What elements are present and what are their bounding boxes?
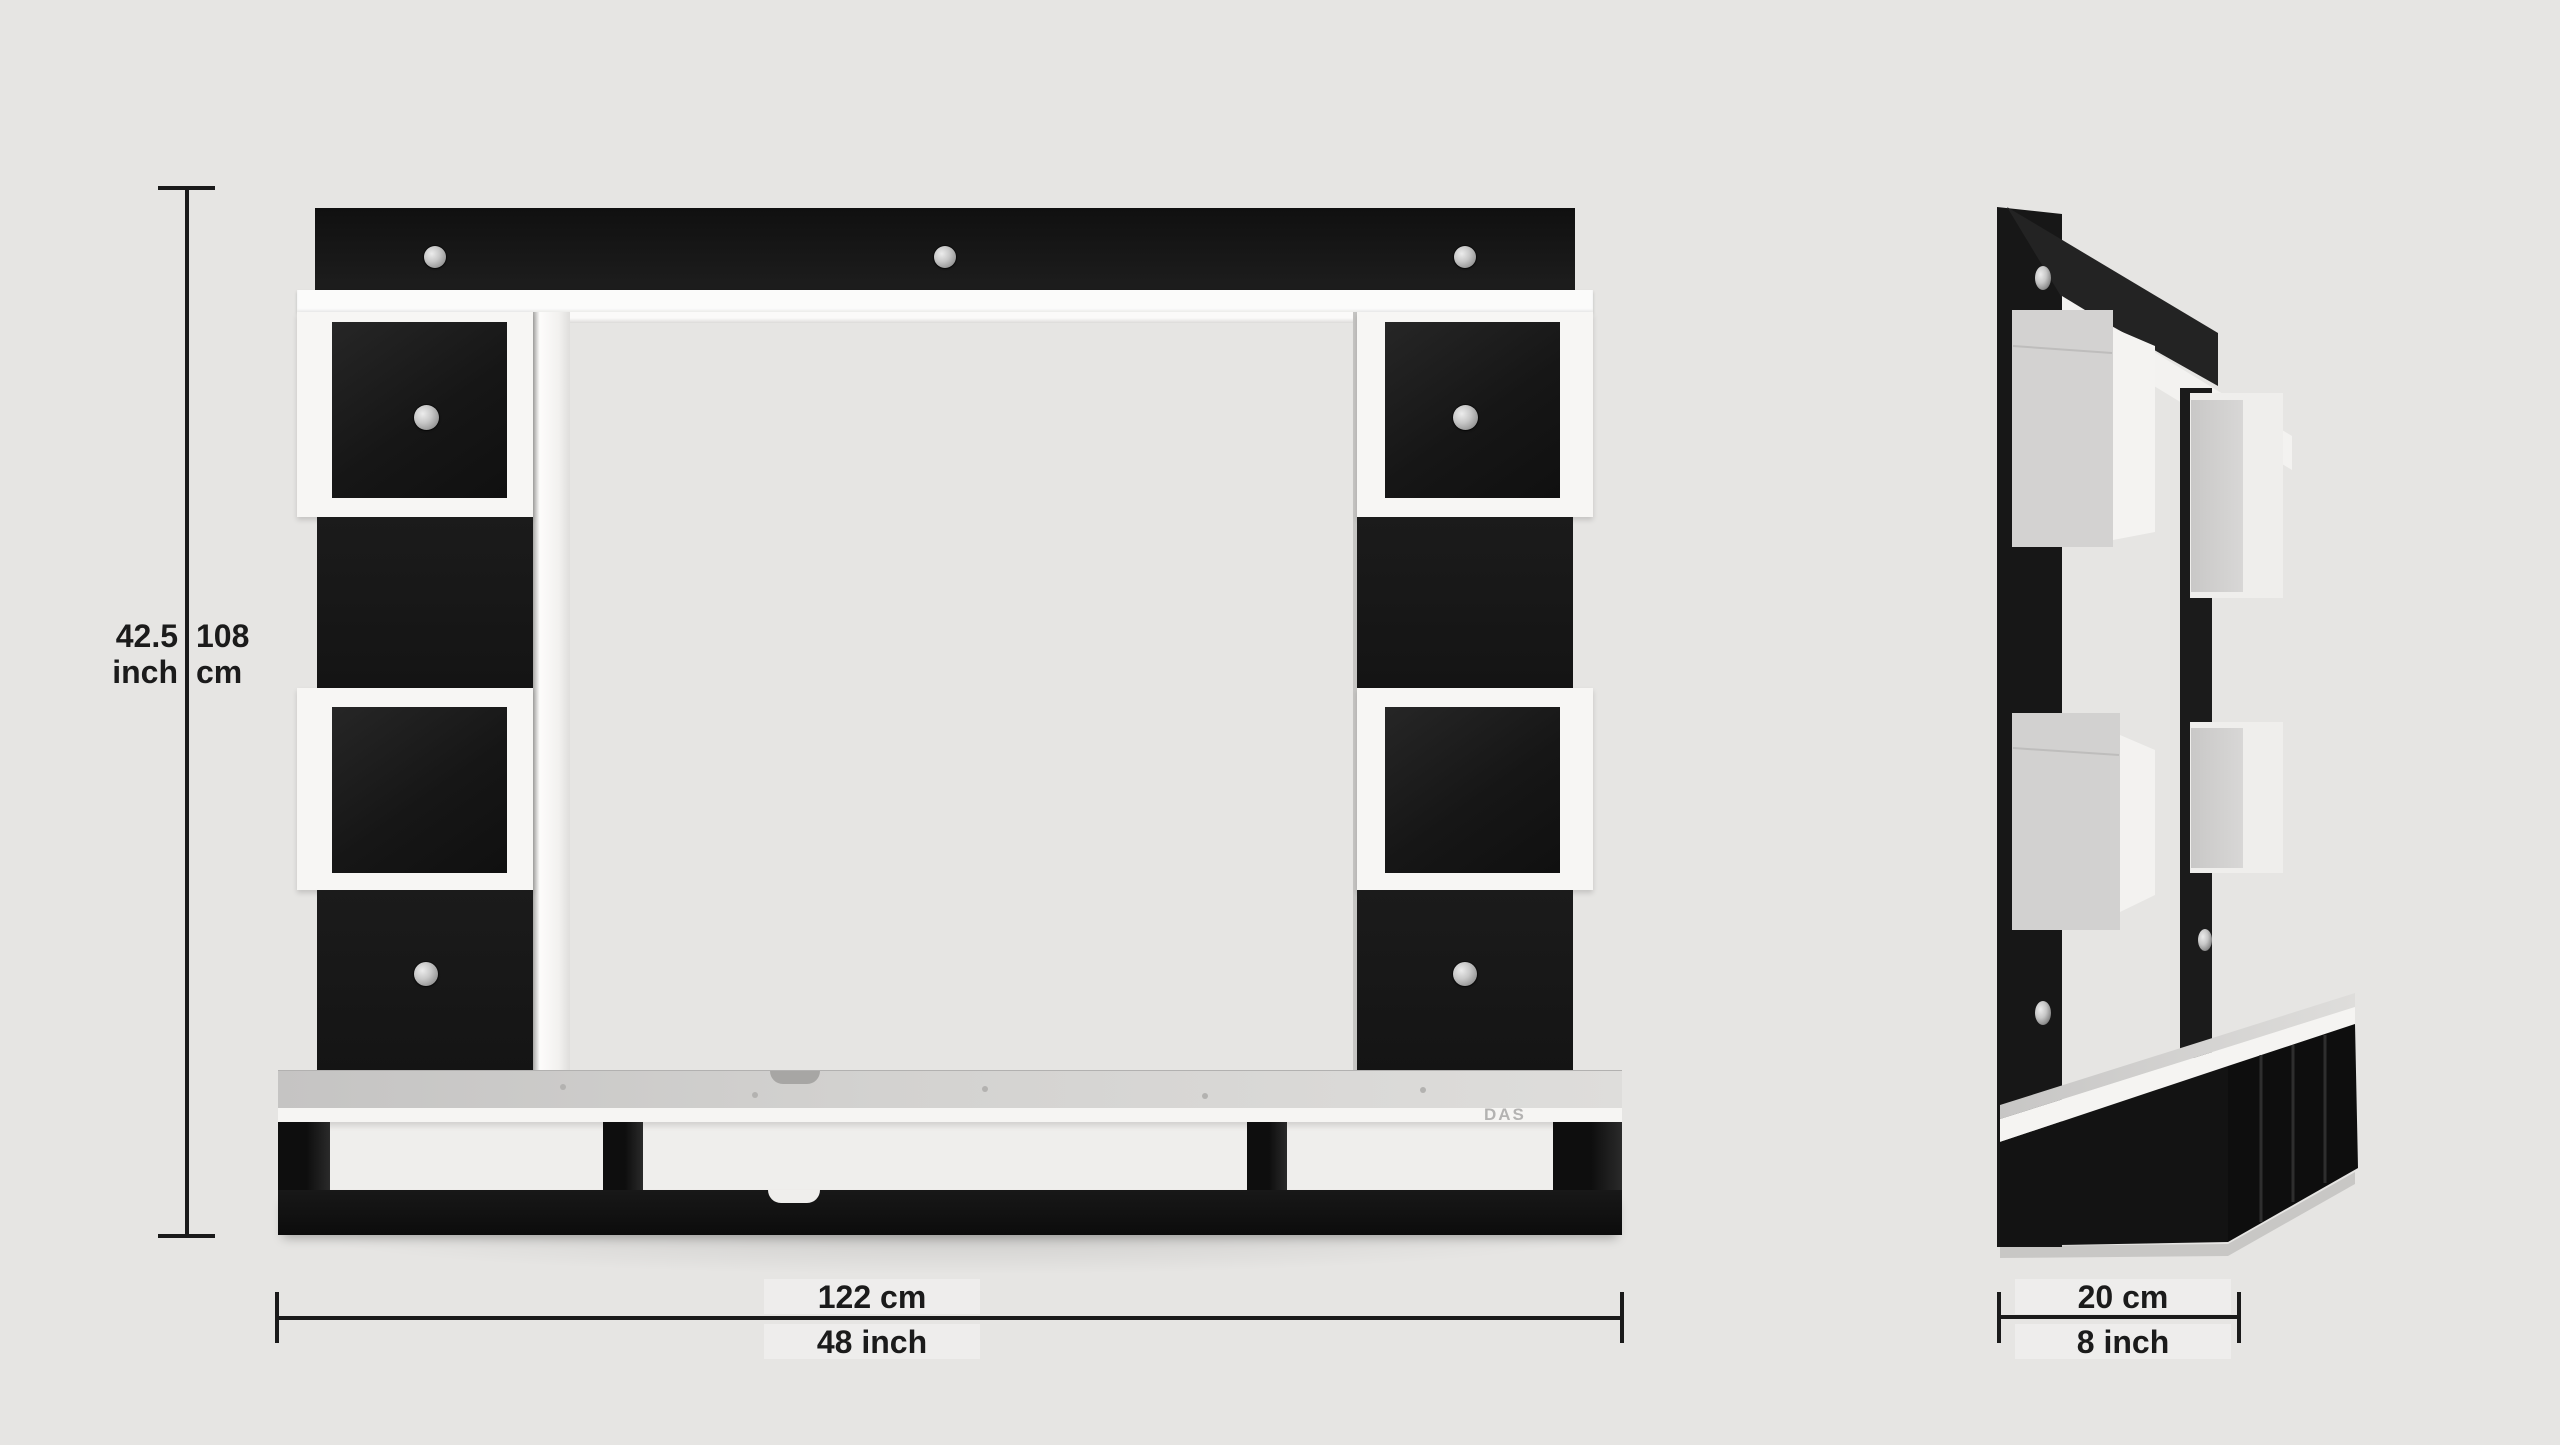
floor-shadow xyxy=(300,1235,1600,1275)
height-label-metric: 108 cm xyxy=(196,618,316,690)
stand-divider xyxy=(1247,1122,1287,1190)
width-dimension-cap-left xyxy=(275,1292,279,1343)
screw-icon xyxy=(1453,405,1478,430)
product-dimension-diagram: DAS xyxy=(0,0,2560,1445)
side-far-upper-box-face xyxy=(2191,400,2243,592)
height-label-imperial: 42.5 inch xyxy=(58,618,178,690)
stand-bottom-panel xyxy=(278,1190,1622,1235)
depth-label-metric: 20 cm xyxy=(2015,1279,2231,1314)
screw-icon xyxy=(1454,246,1476,268)
opening-left-edge xyxy=(533,312,570,1072)
stand-divider xyxy=(603,1122,643,1190)
right-wall-panel-upper xyxy=(1357,517,1573,688)
cable-notch-icon xyxy=(768,1190,820,1203)
screw-icon xyxy=(2035,1001,2051,1025)
side-near-lower-box-side xyxy=(2120,735,2155,912)
screw-icon xyxy=(2035,266,2051,290)
height-metric-unit: cm xyxy=(196,654,316,690)
front-top-shelf xyxy=(297,290,1593,312)
stand-front-edge xyxy=(278,1108,1622,1122)
screw-icon xyxy=(934,246,956,268)
screw-dot-icon xyxy=(982,1086,988,1092)
height-imperial-value: 42.5 xyxy=(58,618,178,654)
cable-notch-icon xyxy=(770,1071,820,1084)
right-lower-cubby-back xyxy=(1385,707,1560,873)
width-dimension-line xyxy=(277,1316,1622,1320)
screw-dot-icon xyxy=(752,1092,758,1098)
width-label-imperial: 48 inch xyxy=(764,1324,980,1359)
stand-right-end-wall xyxy=(1553,1122,1622,1190)
left-lower-cubby-back xyxy=(332,707,507,873)
width-dimension-cap-right xyxy=(1620,1292,1624,1343)
brand-logo: DAS xyxy=(1484,1107,1526,1122)
opening-top-edge xyxy=(533,312,1357,323)
screw-icon xyxy=(2198,929,2212,951)
side-near-upper-box-side xyxy=(2113,328,2155,540)
screw-icon xyxy=(1453,962,1477,986)
side-far-lower-box-face xyxy=(2191,728,2243,868)
stand-left-end-wall xyxy=(278,1122,330,1190)
side-near-upper-box-face xyxy=(2012,310,2113,547)
width-label-metric: 122 cm xyxy=(764,1279,980,1314)
depth-dimension-cap-left xyxy=(1997,1292,2001,1343)
depth-label-imperial: 8 inch xyxy=(2015,1324,2231,1359)
screw-dot-icon xyxy=(1202,1093,1208,1099)
screw-icon xyxy=(414,962,438,986)
left-wall-panel-upper xyxy=(317,517,533,688)
screw-dot-icon xyxy=(1420,1087,1426,1093)
height-dimension-cap-bottom xyxy=(158,1234,215,1238)
height-dimension-line xyxy=(185,188,189,1238)
stand-open-compartments xyxy=(278,1122,1622,1190)
height-dimension-cap-top xyxy=(158,186,215,190)
screw-icon xyxy=(424,246,446,268)
side-near-lower-box-face xyxy=(2012,713,2120,930)
side-view xyxy=(1950,150,2420,1300)
depth-dimension-cap-right xyxy=(2237,1292,2241,1343)
height-imperial-unit: inch xyxy=(58,654,178,690)
screw-icon xyxy=(414,405,439,430)
screw-dot-icon xyxy=(560,1084,566,1090)
depth-dimension-line xyxy=(1999,1315,2239,1319)
height-metric-value: 108 xyxy=(196,618,316,654)
